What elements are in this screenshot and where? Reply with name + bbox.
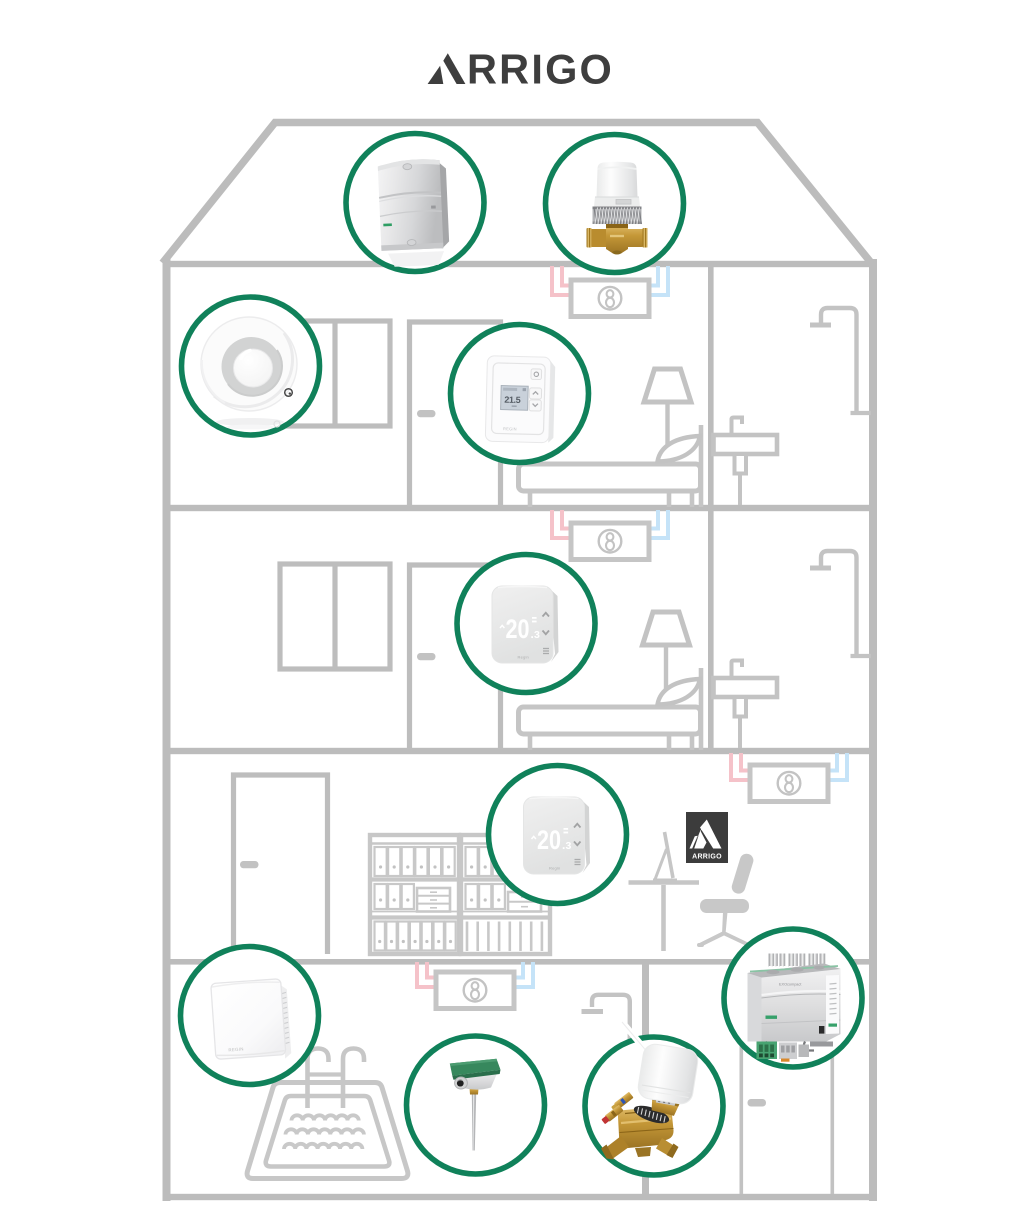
svg-text:20: 20 xyxy=(537,825,561,855)
svg-text:3: 3 xyxy=(534,629,540,641)
svg-text:20: 20 xyxy=(506,614,530,644)
svg-text:3: 3 xyxy=(566,840,572,852)
svg-text:RRIGO: RRIGO xyxy=(467,46,614,93)
svg-text:Regin: Regin xyxy=(549,866,560,871)
svg-text:ARRIGO: ARRIGO xyxy=(692,854,722,861)
svg-text:EXOcompact: EXOcompact xyxy=(779,983,802,987)
svg-text:REGIN: REGIN xyxy=(503,426,517,431)
svg-text:21.5: 21.5 xyxy=(504,395,521,405)
svg-text:Regin: Regin xyxy=(518,655,529,660)
